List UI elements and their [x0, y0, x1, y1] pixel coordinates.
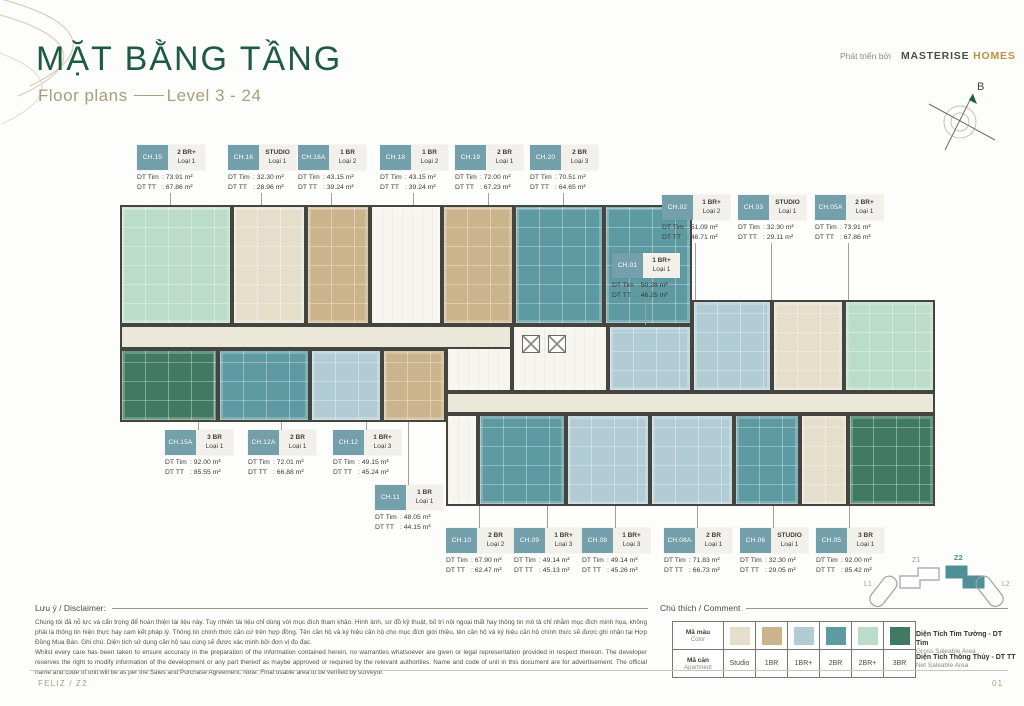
unit-type: 2 BRLoại 1 — [695, 528, 732, 553]
unit-net-area: DT TT: 39.24 m² — [298, 183, 366, 193]
unit-code: CH.15A — [165, 430, 196, 455]
unit-gross-area: DT Tim: 71.83 m² — [664, 556, 732, 566]
unit-label-ch-08: CH.081 BR+Loại 3DT Tim: 49.14 m²DT TT: 4… — [582, 528, 650, 576]
unit-net-area: DT TT: 46.71 m² — [662, 233, 730, 243]
legend-type-2br+: 2BR+ — [852, 650, 883, 677]
svg-text:L2: L2 — [1002, 581, 1010, 588]
unit-label-ch-15a: CH.15A3 BRLoại 1DT Tim: 92.00 m²DT TT: 8… — [165, 430, 233, 478]
leader-line — [488, 193, 489, 205]
unit-tag: CH.03STUDIOLoại 1 — [738, 195, 806, 220]
unit-type: 1 BR+Loại 3 — [364, 430, 401, 455]
legend-type-studio: Studio — [724, 650, 755, 677]
unit-type: 1 BRLoại 1 — [406, 485, 443, 510]
unit-gross-area: DT Tim: 50.28 m² — [612, 281, 680, 291]
unit-type: 1 BR+Loại 1 — [643, 253, 680, 278]
unit-areas: DT Tim: 50.28 m²DT TT: 46.25 m² — [612, 281, 680, 301]
unit-label-ch-08a: CH.08A2 BRLoại 1DT Tim: 71.83 m²DT TT: 6… — [664, 528, 732, 576]
unit-gross-area: DT Tim: 49.15 m² — [333, 458, 401, 468]
unit-areas: DT Tim: 51.09 m²DT TT: 46.71 m² — [662, 223, 730, 243]
heading-rule — [746, 608, 1008, 609]
unit-tag: CH.102 BRLoại 2 — [446, 528, 514, 553]
unit-tag: CH.16STUDIOLoại 1 — [228, 145, 296, 170]
unit-net-area: DT TT: 67.23 m² — [455, 183, 523, 193]
unit-code: CH.12A — [248, 430, 279, 455]
elevator-icon — [548, 335, 566, 353]
plan-core — [512, 325, 608, 392]
plan-unit-ch-10 — [478, 414, 566, 506]
unit-tag: CH.011 BR+Loại 1 — [612, 253, 680, 278]
plan-unit-ch-05a — [844, 300, 935, 392]
unit-areas: DT Tim: 49.14 m²DT TT: 45.26 m² — [582, 556, 650, 576]
unit-type: 2 BRLoại 3 — [561, 145, 598, 170]
plan-core — [446, 414, 478, 506]
unit-tag: CH.08A2 BRLoại 1 — [664, 528, 732, 553]
disclaimer-english: Whilst every care has been taken to ensu… — [35, 648, 647, 678]
net-area-definition: Diện Tích Thông Thủy - DT TT Net Saleabl… — [916, 653, 1016, 669]
unit-code: CH.18 — [380, 145, 411, 170]
unit-net-area: DT TT: 66.88 m² — [248, 468, 316, 478]
leader-line — [170, 193, 171, 205]
color-swatch — [762, 627, 782, 645]
unit-tag: CH.06STUDIOLoại 1 — [740, 528, 808, 553]
unit-net-area: DT TT: 45.24 m² — [333, 468, 401, 478]
plan-unit-ch-01 — [608, 325, 692, 392]
unit-net-area: DT TT: 66.73 m² — [664, 566, 732, 576]
unit-tag: CH.111 BRLoại 1 — [375, 485, 443, 510]
heading-rule — [112, 608, 648, 609]
unit-code: CH.05 — [816, 528, 847, 553]
color-swatch — [794, 627, 814, 645]
leader-line — [771, 243, 772, 300]
footer-rule — [30, 670, 1008, 671]
color-swatch — [826, 627, 846, 645]
unit-gross-area: DT Tim: 67.90 m² — [446, 556, 514, 566]
leader-line — [366, 422, 367, 430]
unit-tag: CH.202 BRLoại 3 — [530, 145, 598, 170]
unit-gross-area: DT Tim: 32.30 m² — [738, 223, 806, 233]
unit-tag: CH.091 BR+Loại 3 — [514, 528, 582, 553]
unit-gross-area: DT Tim: 32.30 m² — [740, 556, 808, 566]
unit-areas: DT Tim: 92.00 m²DT TT: 85.55 m² — [165, 458, 233, 478]
unit-areas: DT Tim: 48.05 m²DT TT: 44.15 m² — [375, 513, 443, 533]
legend-swatch-3br — [884, 622, 915, 649]
unit-code: CH.06 — [740, 528, 771, 553]
unit-gross-area: DT Tim: 43.15 m² — [298, 173, 366, 183]
unit-code: CH.16A — [298, 145, 329, 170]
unit-label-ch-11: CH.111 BRLoại 1DT Tim: 48.05 m²DT TT: 44… — [375, 485, 443, 533]
unit-type: STUDIOLoại 1 — [769, 195, 806, 220]
color-swatch — [890, 627, 910, 645]
elevator-icon — [522, 335, 540, 353]
unit-net-area: DT TT: 44.15 m² — [375, 523, 443, 533]
footer-page-number: 01 — [992, 679, 1003, 688]
plan-unit-ch-18 — [442, 205, 514, 325]
unit-type: STUDIOLoại 1 — [259, 145, 296, 170]
unit-gross-area: DT Tim: 48.05 m² — [375, 513, 443, 523]
legend-heading: Chú thích / Comment — [660, 603, 1008, 613]
leader-line — [408, 422, 409, 485]
unit-label-ch-12: CH.121 BR+Loại 3DT Tim: 49.15 m²DT TT: 4… — [333, 430, 401, 478]
unit-tag: CH.181 BRLoại 2 — [380, 145, 448, 170]
leader-line — [849, 506, 850, 528]
unit-net-area: DT TT: 45.13 m² — [514, 566, 582, 576]
plan-core — [370, 205, 442, 325]
unit-gross-area: DT Tim: 49.14 m² — [514, 556, 582, 566]
plan-unit-ch-08 — [650, 414, 734, 506]
leader-line — [645, 301, 646, 325]
leader-line — [695, 243, 696, 300]
unit-tag: CH.081 BR+Loại 3 — [582, 528, 650, 553]
plan-corridor — [446, 392, 935, 414]
legend-type-1br: 1BR — [756, 650, 787, 677]
unit-tag: CH.16A1 BRLoại 2 — [298, 145, 366, 170]
leader-line — [563, 193, 564, 205]
leader-line — [198, 422, 199, 430]
unit-label-ch-18: CH.181 BRLoại 2DT Tim: 43.15 m²DT TT: 39… — [380, 145, 448, 193]
unit-code: CH.05A — [815, 195, 846, 220]
unit-net-area: DT TT: 46.25 m² — [612, 291, 680, 301]
unit-type: 3 BRLoại 1 — [847, 528, 884, 553]
color-swatch — [730, 627, 750, 645]
plan-corridor — [120, 325, 512, 349]
unit-type: 1 BRLoại 2 — [411, 145, 448, 170]
leader-line — [615, 506, 616, 528]
leader-line — [331, 193, 332, 205]
unit-gross-area: DT Tim: 70.51 m² — [530, 173, 598, 183]
unit-label-ch-19: CH.192 BRLoại 1DT Tim: 72.00 m²DT TT: 67… — [455, 145, 523, 193]
unit-label-ch-10: CH.102 BRLoại 2DT Tim: 67.90 m²DT TT: 62… — [446, 528, 514, 576]
unit-code: CH.12 — [333, 430, 364, 455]
unit-areas: DT Tim: 92.00 m²DT TT: 85.42 m² — [816, 556, 884, 576]
unit-label-ch-12a: CH.12A2 BRLoại 1DT Tim: 72.01 m²DT TT: 6… — [248, 430, 316, 478]
unit-label-ch-03: CH.03STUDIOLoại 1DT Tim: 32.30 m²DT TT: … — [738, 195, 806, 243]
legend-type-3br: 3BR — [884, 650, 915, 677]
plan-unit-ch-16a — [306, 205, 370, 325]
plan-unit-ch-19 — [514, 205, 604, 325]
unit-code: CH.19 — [455, 145, 486, 170]
legend-type-1br+: 1BR+ — [788, 650, 819, 677]
unit-areas: DT Tim: 32.30 m²DT TT: 29.11 m² — [738, 223, 806, 243]
unit-areas: DT Tim: 73.91 m²DT TT: 67.86 m² — [137, 173, 205, 193]
plan-unit-ch-08a — [734, 414, 800, 506]
unit-type: 1 BRLoại 2 — [329, 145, 366, 170]
unit-gross-area: DT Tim: 73.91 m² — [137, 173, 205, 183]
unit-label-ch-20: CH.202 BRLoại 3DT Tim: 70.51 m²DT TT: 64… — [530, 145, 598, 193]
legend-swatch-2br — [820, 622, 851, 649]
footer-project-code: FELIZ / Z2 — [38, 679, 88, 688]
leader-line — [547, 506, 548, 528]
unit-areas: DT Tim: 32.30 m²DT TT: 29.05 m² — [740, 556, 808, 576]
unit-label-ch-05a: CH.05A2 BR+Loại 1DT Tim: 73.91 m²DT TT: … — [815, 195, 883, 243]
unit-code: CH.16 — [228, 145, 259, 170]
unit-gross-area: DT Tim: 43.15 m² — [380, 173, 448, 183]
unit-tag: CH.12A2 BRLoại 1 — [248, 430, 316, 455]
unit-label-ch-09: CH.091 BR+Loại 3DT Tim: 49.14 m²DT TT: 4… — [514, 528, 582, 576]
svg-text:Z1: Z1 — [912, 557, 920, 564]
leader-line — [773, 506, 774, 528]
unit-net-area: DT TT: 67.86 m² — [137, 183, 205, 193]
unit-areas: DT Tim: 71.83 m²DT TT: 66.73 m² — [664, 556, 732, 576]
unit-areas: DT Tim: 43.15 m²DT TT: 39.24 m² — [380, 173, 448, 193]
unit-label-ch-02: CH.021 BR+Loại 2DT Tim: 51.09 m²DT TT: 4… — [662, 195, 730, 243]
unit-areas: DT Tim: 49.15 m²DT TT: 45.24 m² — [333, 458, 401, 478]
leader-line — [261, 193, 262, 205]
unit-areas: DT Tim: 72.00 m²DT TT: 67.23 m² — [455, 173, 523, 193]
leader-line — [281, 422, 282, 430]
unit-code: CH.11 — [375, 485, 406, 510]
gross-area-definition: Diện Tích Tim Tường - DT Tim Gross Salea… — [916, 630, 1016, 655]
unit-gross-area: DT Tim: 49.14 m² — [582, 556, 650, 566]
unit-areas: DT Tim: 43.15 m²DT TT: 39.24 m² — [298, 173, 366, 193]
unit-code: CH.01 — [612, 253, 643, 278]
unit-label-ch-15: CH.152 BR+Loại 1DT Tim: 73.91 m²DT TT: 6… — [137, 145, 205, 193]
legend-swatch-1br+ — [788, 622, 819, 649]
legend-swatch-2br+ — [852, 622, 883, 649]
plan-unit-ch-02 — [692, 300, 772, 392]
unit-label-ch-05: CH.053 BRLoại 1DT Tim: 92.00 m²DT TT: 85… — [816, 528, 884, 576]
unit-areas: DT Tim: 70.51 m²DT TT: 64.65 m² — [530, 173, 598, 193]
unit-code: CH.10 — [446, 528, 477, 553]
leader-line — [697, 506, 698, 528]
unit-net-area: DT TT: 29.05 m² — [740, 566, 808, 576]
unit-code: CH.09 — [514, 528, 545, 553]
leader-line — [413, 193, 414, 205]
plan-unit-ch-15 — [120, 205, 232, 325]
unit-tag: CH.05A2 BR+Loại 1 — [815, 195, 883, 220]
unit-tag: CH.021 BR+Loại 2 — [662, 195, 730, 220]
unit-net-area: DT TT: 85.55 m² — [165, 468, 233, 478]
legend-apartment-row-label: Mã cănApartment — [673, 650, 723, 677]
unit-net-area: DT TT: 67.86 m² — [815, 233, 883, 243]
unit-code: CH.08 — [582, 528, 613, 553]
unit-tag: CH.152 BR+Loại 1 — [137, 145, 205, 170]
unit-label-ch-06: CH.06STUDIOLoại 1DT Tim: 32.30 m²DT TT: … — [740, 528, 808, 576]
unit-type: 2 BR+Loại 1 — [846, 195, 883, 220]
unit-net-area: DT TT: 28.96 m² — [228, 183, 296, 193]
unit-gross-area: DT Tim: 72.01 m² — [248, 458, 316, 468]
leader-line — [479, 506, 480, 528]
plan-unit-ch-03 — [772, 300, 844, 392]
unit-type: 2 BRLoại 1 — [486, 145, 523, 170]
unit-code: CH.03 — [738, 195, 769, 220]
unit-type: STUDIOLoại 1 — [771, 528, 808, 553]
unit-gross-area: DT Tim: 32.30 m² — [228, 173, 296, 183]
unit-type: 2 BRLoại 1 — [279, 430, 316, 455]
disclaimer-heading: Lưu ý / Disclaimer: — [35, 603, 648, 613]
plan-unit-ch-09 — [566, 414, 650, 506]
svg-text:Z2: Z2 — [954, 553, 963, 562]
unit-areas: DT Tim: 72.01 m²DT TT: 66.88 m² — [248, 458, 316, 478]
floor-plan-sheet: MẶT BẰNG TẦNG Floor plansLevel 3 - 24 Ph… — [0, 0, 1024, 706]
unit-areas: DT Tim: 73.91 m²DT TT: 67.86 m² — [815, 223, 883, 243]
unit-type: 2 BR+Loại 1 — [168, 145, 205, 170]
plan-unit-ch-15a — [120, 349, 218, 422]
plan-unit-ch-05 — [848, 414, 935, 506]
color-swatch — [858, 627, 878, 645]
unit-areas: DT Tim: 67.90 m²DT TT: 62.47 m² — [446, 556, 514, 576]
unit-type: 3 BRLoại 1 — [196, 430, 233, 455]
legend-type-2br: 2BR — [820, 650, 851, 677]
plan-unit-ch-11 — [382, 349, 446, 422]
unit-tag: CH.053 BRLoại 1 — [816, 528, 884, 553]
unit-net-area: DT TT: 64.65 m² — [530, 183, 598, 193]
leader-line — [848, 243, 849, 300]
unit-gross-area: DT Tim: 92.00 m² — [816, 556, 884, 566]
unit-label-ch-01: CH.011 BR+Loại 1DT Tim: 50.28 m²DT TT: 4… — [612, 253, 680, 301]
unit-label-ch-16a: CH.16A1 BRLoại 2DT Tim: 43.15 m²DT TT: 3… — [298, 145, 366, 193]
unit-net-area: DT TT: 29.11 m² — [738, 233, 806, 243]
unit-net-area: DT TT: 39.24 m² — [380, 183, 448, 193]
unit-areas: DT Tim: 49.14 m²DT TT: 45.13 m² — [514, 556, 582, 576]
unit-gross-area: DT Tim: 73.91 m² — [815, 223, 883, 233]
plan-unit-ch-06 — [800, 414, 848, 506]
unit-code: CH.20 — [530, 145, 561, 170]
unit-label-ch-16: CH.16STUDIOLoại 1DT Tim: 32.30 m²DT TT: … — [228, 145, 296, 193]
unit-tag: CH.121 BR+Loại 3 — [333, 430, 401, 455]
legend-swatch-1br — [756, 622, 787, 649]
unit-net-area: DT TT: 45.26 m² — [582, 566, 650, 576]
unit-gross-area: DT Tim: 51.09 m² — [662, 223, 730, 233]
unit-type: 1 BR+Loại 2 — [693, 195, 730, 220]
unit-type: 1 BR+Loại 3 — [545, 528, 582, 553]
unit-areas: DT Tim: 32.30 m²DT TT: 28.96 m² — [228, 173, 296, 193]
unit-code: CH.08A — [664, 528, 695, 553]
unit-net-area: DT TT: 85.42 m² — [816, 566, 884, 576]
plan-unit-ch-12 — [310, 349, 382, 422]
unit-tag: CH.15A3 BRLoại 1 — [165, 430, 233, 455]
unit-code: CH.02 — [662, 195, 693, 220]
unit-tag: CH.192 BRLoại 1 — [455, 145, 523, 170]
disclaimer-vietnamese: Chúng tôi đã nỗ lực và cẩn trọng để hoàn… — [35, 618, 647, 648]
unit-code: CH.15 — [137, 145, 168, 170]
plan-unit-ch-16 — [232, 205, 306, 325]
legend-swatch-studio — [724, 622, 755, 649]
unit-gross-area: DT Tim: 72.00 m² — [455, 173, 523, 183]
plan-unit-ch-12a — [218, 349, 310, 422]
legend-color-row-label: Mã màuColor — [673, 622, 723, 649]
unit-gross-area: DT Tim: 92.00 m² — [165, 458, 233, 468]
unit-type: 1 BR+Loại 3 — [613, 528, 650, 553]
svg-text:L1: L1 — [864, 581, 872, 588]
unit-type: 2 BRLoại 2 — [477, 528, 514, 553]
unit-net-area: DT TT: 62.47 m² — [446, 566, 514, 576]
